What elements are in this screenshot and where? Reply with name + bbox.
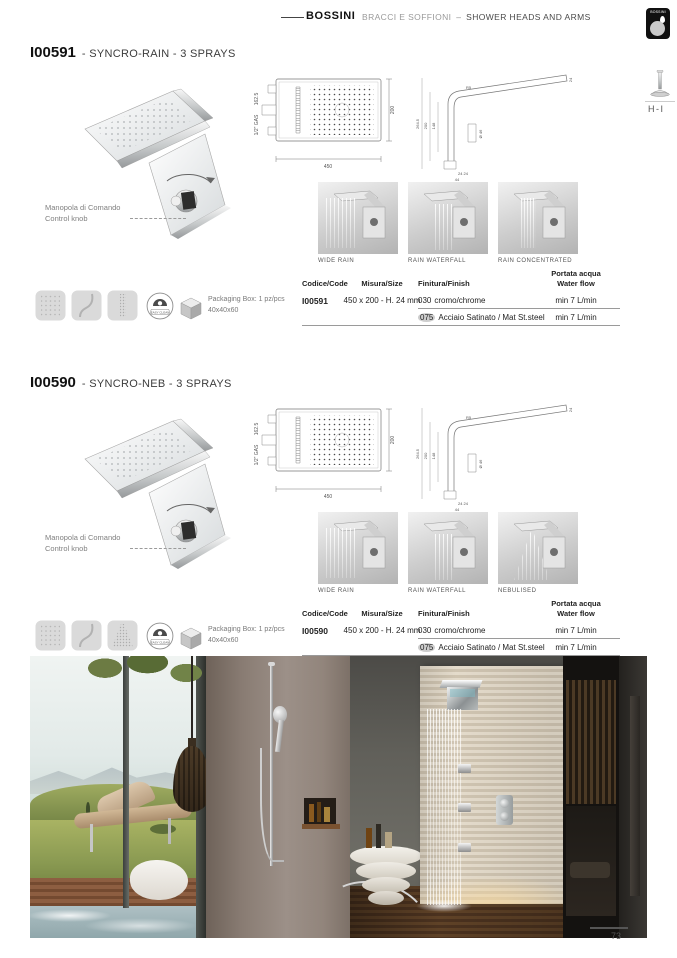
- mixer-knob: [500, 812, 509, 821]
- packaging-box-icon: [177, 294, 204, 321]
- packaging-label: Packaging Box: 1 pz/pcs: [208, 624, 285, 635]
- spray-caption: WIDE RAIN: [318, 588, 354, 594]
- cell-empty: [302, 639, 346, 656]
- water-spray: [521, 198, 536, 248]
- bossini-logo: BOSSINI: [646, 8, 670, 39]
- stool-bottle: [385, 832, 392, 848]
- spray-photo-wide-rain: WIDE RAIN: [318, 512, 398, 584]
- col-header-finish: Finitura/Finish: [418, 598, 532, 622]
- col-header-flow-line1: Portata acqua: [551, 269, 601, 278]
- page-number: 73: [604, 931, 628, 941]
- spray-caption: RAIN WATERFALL: [408, 588, 466, 594]
- stool-bottle: [376, 824, 381, 848]
- lounger-leg: [168, 818, 171, 844]
- col-header-size: Misura/Size: [346, 598, 418, 622]
- control-knob-label: Manopola di Comando Control knob: [45, 202, 120, 225]
- cell-flow: min 7 L/min: [532, 292, 620, 309]
- wood-slat-wall: [566, 680, 616, 804]
- finish-code-badge: 075: [418, 643, 435, 652]
- col-header-code: Codice/Code: [302, 598, 346, 622]
- cell-finish: 075 Acciaio Satinato / Mat St.steel: [418, 309, 532, 326]
- side-drawing: 264.5 200 148 24 R5 Ø 46 24 24 44: [416, 64, 576, 182]
- col-header-flow-line1: Portata acqua: [551, 599, 601, 608]
- water-spray: [435, 204, 452, 250]
- cell-empty: [346, 309, 418, 326]
- finish-code-badge: 075: [418, 313, 435, 322]
- packaging-info: Packaging Box: 1 pz/pcs 40x40x60: [208, 624, 285, 646]
- nebulised-spray-icon: [107, 620, 138, 651]
- easy-clean-badge: EASY CLEAN: [146, 622, 174, 650]
- logo-text: BOSSINI: [646, 10, 670, 14]
- pebble-stool: [368, 891, 404, 905]
- cell-flow: min 7 L/min: [532, 622, 620, 639]
- lifestyle-photo: [30, 656, 647, 938]
- product-illustration: [55, 77, 240, 252]
- cell-finish: 030 cromo/chrome: [418, 622, 532, 639]
- cell-flow: min 7 L/min: [532, 639, 620, 656]
- svg-text:450: 450: [324, 494, 333, 500]
- front-drawing: 450 200 162.5 1/2" GAS: [252, 67, 397, 175]
- svg-text:R5: R5: [466, 415, 472, 420]
- col-header-size: Misura/Size: [346, 268, 418, 292]
- side-drawing: 264.5 200 148 24 R5 Ø 46 24 24 44: [416, 394, 576, 512]
- category-italian: BRACCI E SOFFIONI: [362, 12, 451, 22]
- svg-text:200: 200: [423, 122, 428, 129]
- finish-code: 030: [418, 296, 431, 305]
- body-jet: [458, 803, 471, 812]
- spray-caption: NEBULISED: [498, 588, 537, 594]
- concentrated-spray-icon: [107, 290, 138, 321]
- catalog-page: BOSSINI BRACCI E SOFFIONI – SHOWER HEADS…: [0, 0, 677, 958]
- body-jet: [458, 764, 471, 773]
- shower-hose: [260, 748, 284, 862]
- wide-rain-icon: [35, 290, 66, 321]
- packaging-info: Packaging Box: 1 pz/pcs 40x40x60: [208, 294, 285, 316]
- mixer-knob: [500, 799, 509, 808]
- product-code: I00590: [30, 374, 76, 391]
- svg-text:162.5: 162.5: [254, 93, 260, 106]
- cell-flow: min 7 L/min: [532, 309, 620, 326]
- svg-text:200: 200: [423, 452, 428, 459]
- logo-circle: [650, 21, 665, 36]
- header-subtitle: BRACCI E SOFFIONI – SHOWER HEADS AND ARM…: [362, 12, 591, 22]
- cell-size: 450 x 200 - H. 24 mm: [346, 622, 418, 639]
- header-rule: [281, 17, 304, 18]
- svg-text:R5: R5: [466, 85, 472, 90]
- bedroom-glimpse: [566, 806, 616, 916]
- section-title: I00590 - SYNCRO-NEB - 3 SPRAYS: [30, 374, 232, 391]
- finish-code: 030: [418, 626, 431, 635]
- product-name: - SYNCRO-NEB - 3 SPRAYS: [82, 378, 232, 390]
- svg-text:200: 200: [390, 436, 396, 445]
- white-pillow: [130, 860, 188, 900]
- spray-caption: RAIN CONCENTRATED: [498, 258, 572, 264]
- curtain-sliver: [630, 696, 640, 896]
- product-illustration: [55, 407, 240, 582]
- finish-name: Acciaio Satinato / Mat St.steel: [438, 643, 544, 652]
- knob-label-italian: Manopola di Comando: [45, 532, 120, 543]
- spray-caption: RAIN WATERFALL: [408, 258, 466, 264]
- easy-clean-badge: EASY CLEAN: [146, 292, 174, 320]
- product-name: - SYNCRO-RAIN - 3 SPRAYS: [82, 48, 236, 60]
- svg-text:EASY CLEAN: EASY CLEAN: [151, 310, 170, 314]
- cell-empty: [302, 309, 346, 326]
- svg-text:200: 200: [390, 106, 396, 115]
- footer-rule: [590, 927, 628, 929]
- knob-label-english: Control knob: [45, 213, 120, 224]
- waterfall-icon: [71, 290, 102, 321]
- category-english: SHOWER HEADS AND ARMS: [466, 12, 591, 22]
- col-header-code: Codice/Code: [302, 268, 346, 292]
- spray-photo-rain-waterfall: RAIN WATERFALL: [408, 512, 488, 584]
- finish-name: cromo/chrome: [434, 626, 485, 635]
- svg-text:148: 148: [431, 122, 436, 129]
- knob-label-italian: Manopola di Comando: [45, 202, 120, 213]
- packaging-size: 40x40x60: [208, 635, 285, 646]
- packaging-size: 40x40x60: [208, 305, 285, 316]
- svg-text:148: 148: [431, 452, 436, 459]
- col-header-flow: Portata acqua Water flow: [532, 268, 620, 292]
- water-spray: [326, 528, 356, 578]
- spray-photo-rain-concentrated: RAIN CONCENTRATED: [498, 182, 578, 254]
- body-jet: [458, 843, 471, 852]
- product-code: I00591: [30, 44, 76, 61]
- svg-text:1/2" GAS: 1/2" GAS: [254, 444, 260, 465]
- niche-bottle: [324, 807, 330, 822]
- water-splash: [416, 900, 472, 912]
- svg-text:Ø 46: Ø 46: [478, 459, 483, 468]
- front-drawing: 450 200 162.5 1/2" GAS: [252, 397, 397, 505]
- col-header-flow-line2: Water flow: [557, 609, 595, 618]
- svg-text:1/2" GAS: 1/2" GAS: [254, 114, 260, 135]
- svg-text:264.5: 264.5: [416, 118, 420, 129]
- finish-name: cromo/chrome: [434, 296, 485, 305]
- bed-shape: [570, 862, 610, 878]
- rail-cap: [268, 662, 275, 666]
- svg-text:24: 24: [568, 407, 573, 412]
- spray-photo-nebulised: NEBULISED: [498, 512, 578, 584]
- col-header-flow-line2: Water flow: [557, 279, 595, 288]
- section-title: I00591 - SYNCRO-RAIN - 3 SPRAYS: [30, 44, 236, 61]
- water-stream: [427, 709, 462, 905]
- niche-bottle: [309, 804, 314, 822]
- finish-name: Acciaio Satinato / Mat St.steel: [438, 313, 544, 322]
- cell-code: I00591: [302, 292, 346, 309]
- water-spray: [435, 534, 452, 580]
- shower-water-sheet: [450, 689, 475, 697]
- cell-finish: 075 Acciaio Satinato / Mat St.steel: [418, 639, 532, 656]
- packaging-box-icon: [177, 624, 204, 651]
- pool-water: [30, 906, 208, 938]
- hanging-branch: [80, 656, 205, 696]
- svg-text:EASY CLEAN: EASY CLEAN: [151, 640, 170, 644]
- spray-caption: WIDE RAIN: [318, 258, 354, 264]
- cell-finish: 030 cromo/chrome: [418, 292, 532, 309]
- wood-shelf: [302, 824, 340, 829]
- packaging-label: Packaging Box: 1 pz/pcs: [208, 294, 285, 305]
- product-section-i00591: I00591 - SYNCRO-RAIN - 3 SPRAYS Manopola…: [0, 42, 677, 372]
- spray-photo-rain-waterfall: RAIN WATERFALL: [408, 182, 488, 254]
- svg-text:24: 24: [568, 77, 573, 82]
- svg-text:24 24: 24 24: [458, 501, 469, 506]
- spec-table: Codice/Code Misura/Size Finitura/Finish …: [302, 598, 620, 656]
- stool-bottle: [366, 828, 372, 848]
- col-header-finish: Finitura/Finish: [418, 268, 532, 292]
- lounger-leg: [90, 824, 93, 852]
- brand-wordmark: BOSSINI: [306, 10, 355, 22]
- svg-text:162.5: 162.5: [254, 423, 260, 436]
- leader-line: [130, 218, 186, 220]
- spray-photo-wide-rain: WIDE RAIN: [318, 182, 398, 254]
- spec-table: Codice/Code Misura/Size Finitura/Finish …: [302, 268, 620, 326]
- niche-bottle: [317, 802, 321, 822]
- scene-bush: [150, 824, 176, 834]
- product-section-i00590: I00590 - SYNCRO-NEB - 3 SPRAYS Manopola …: [0, 372, 677, 702]
- svg-text:450: 450: [324, 164, 333, 170]
- cell-size: 450 x 200 - H. 24 mm: [346, 292, 418, 309]
- waterfall-icon: [71, 620, 102, 651]
- cell-code: I00590: [302, 622, 346, 639]
- leader-line: [130, 548, 186, 550]
- svg-text:264.5: 264.5: [416, 448, 420, 459]
- water-spray: [326, 198, 356, 248]
- col-header-flow: Portata acqua Water flow: [532, 598, 620, 622]
- category-separator: –: [454, 12, 463, 22]
- cell-empty: [346, 639, 418, 656]
- svg-text:24 24: 24 24: [458, 171, 469, 176]
- knob-label-english: Control knob: [45, 543, 120, 554]
- control-knob-label: Manopola di Comando Control knob: [45, 532, 120, 555]
- pendant-cord: [191, 656, 193, 740]
- svg-text:Ø 46: Ø 46: [478, 129, 483, 138]
- wide-rain-icon: [35, 620, 66, 651]
